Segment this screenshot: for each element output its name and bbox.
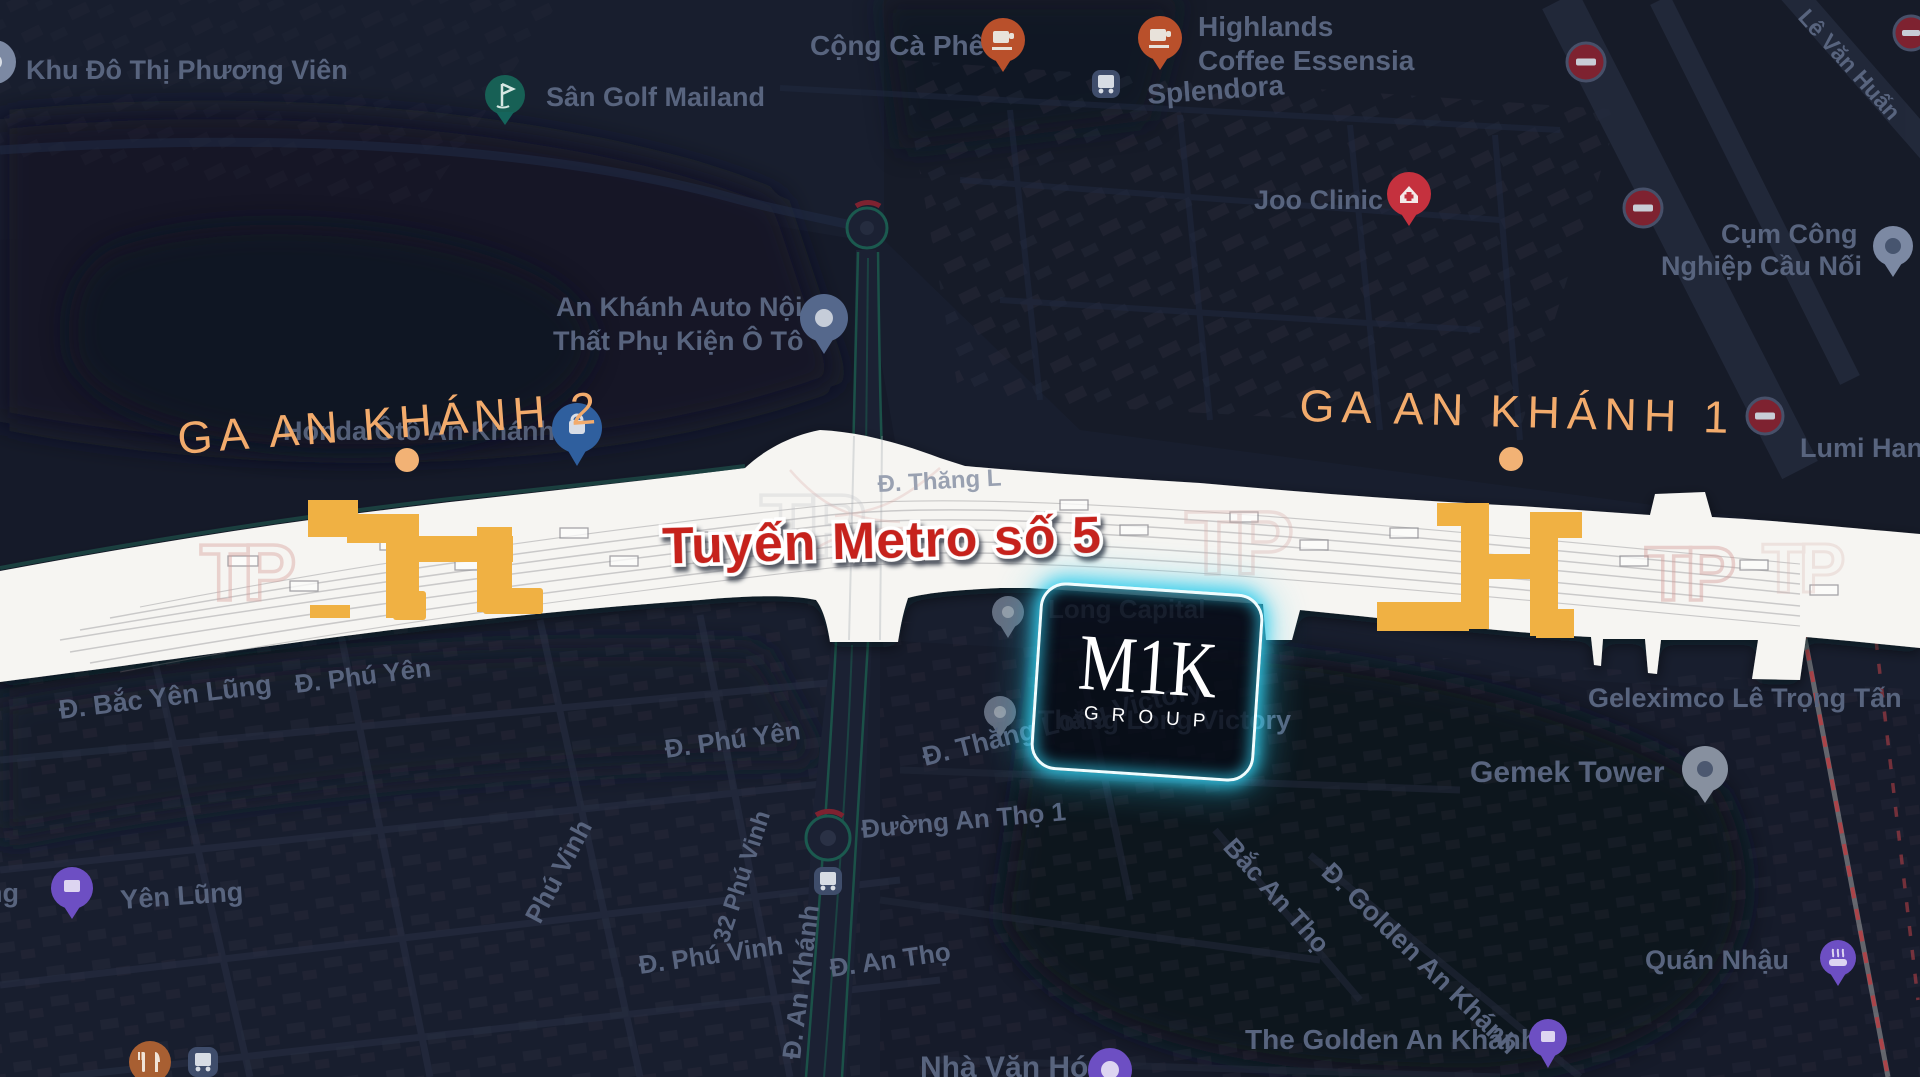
svg-text:Gemek Tower: Gemek Tower <box>1470 756 1665 789</box>
svg-text:Tuyến Metro số 5: Tuyến Metro số 5 <box>661 506 1102 575</box>
svg-text:An Khánh Auto Nội: An Khánh Auto Nội <box>556 292 802 322</box>
svg-text:Nghiệp Cầu Nối: Nghiệp Cầu Nối <box>1661 251 1862 281</box>
svg-text:TP: TP <box>1645 532 1734 617</box>
svg-text:Lumi Hano: Lumi Hano <box>1800 433 1920 463</box>
svg-text:Khu Đô Thị Phương Viên: Khu Đô Thị Phương Viên <box>26 55 348 85</box>
svg-text:Thất Phụ Kiện Ô Tô: Thất Phụ Kiện Ô Tô <box>553 325 804 356</box>
svg-text:Cộng Cà Phê: Cộng Cà Phê <box>810 30 984 61</box>
svg-text:Geleximco Lê Trọng Tấn: Geleximco Lê Trọng Tấn <box>1588 683 1902 713</box>
svg-text:Nhà Văn Hóa: Nhà Văn Hóa <box>920 1051 1105 1077</box>
svg-text:Highlands: Highlands <box>1198 11 1333 42</box>
svg-text:TP: TP <box>1185 494 1291 594</box>
svg-text:The Golden An Khánh: The Golden An Khánh <box>1245 1024 1538 1055</box>
svg-text:TP: TP <box>1762 529 1844 607</box>
svg-text:Sân Golf Mailand: Sân Golf Mailand <box>546 82 765 112</box>
svg-text:Coffee Essensia: Coffee Essensia <box>1198 45 1415 76</box>
svg-text:ng: ng <box>0 878 19 908</box>
svg-text:TP: TP <box>200 528 294 617</box>
svg-text:Quán Nhậu: Quán Nhậu <box>1645 945 1789 975</box>
svg-text:Joo Clinic: Joo Clinic <box>1254 185 1383 215</box>
svg-text:Cụm Công: Cụm Công <box>1721 219 1857 249</box>
